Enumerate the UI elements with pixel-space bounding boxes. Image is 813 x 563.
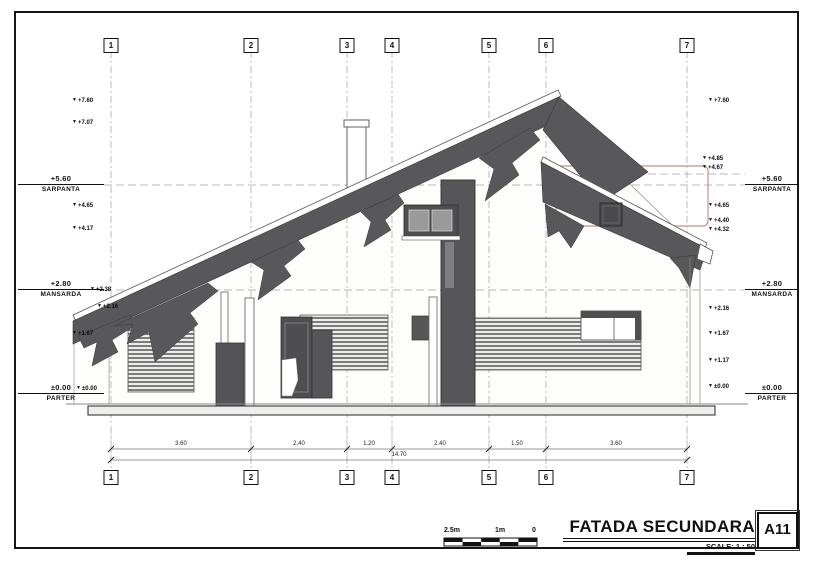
level-parter-right: ±0.00 PARTER xyxy=(745,383,799,402)
level-value: ±0.00 xyxy=(745,383,799,392)
downspout xyxy=(429,297,437,406)
triangle-down-icon: ▼ xyxy=(72,225,77,231)
level-name: MANSARDA xyxy=(745,291,799,298)
grid-bubble-top-5: 5 xyxy=(482,38,497,53)
roof-skylight xyxy=(600,203,622,226)
elev-marker-right: ▼+4.32 xyxy=(708,227,729,234)
elev-marker-left: ▼+2.38 xyxy=(90,287,111,294)
elev-marker-right: ▼+4.85 xyxy=(702,156,723,163)
elev-marker-left: ▼+2.16 xyxy=(97,304,118,311)
small-dark-window xyxy=(412,316,430,340)
scale-text: SCALE: 1 : 50 xyxy=(650,542,755,551)
elev-marker-right: ▼+4.67 xyxy=(702,165,723,172)
scalebar-label-0: 0 xyxy=(532,527,536,534)
grid-bubble-bottom-3: 3 xyxy=(340,470,355,485)
triangle-down-icon: ▼ xyxy=(702,164,707,170)
dim-segment: 1.50 xyxy=(511,441,523,447)
triangle-down-icon: ▼ xyxy=(708,305,713,311)
level-name: SARPANTA xyxy=(745,186,799,193)
dim-segment: 3.60 xyxy=(610,441,622,447)
level-sarpanta-right: +5.60 SARPANTA xyxy=(745,174,799,193)
triangle-down-icon: ▼ xyxy=(708,357,713,363)
level-rule xyxy=(18,184,104,185)
elev-marker-left: ▼+1.67 xyxy=(72,331,93,338)
grid-bubble-bottom-5: 5 xyxy=(482,470,497,485)
mansarda-double-window xyxy=(402,205,460,240)
triangle-down-icon: ▼ xyxy=(708,202,713,208)
elev-marker-left: ▼+4.65 xyxy=(72,203,93,210)
elev-marker-right: ▼±0.00 xyxy=(708,384,729,391)
drawing-sheet: 1 2 3 4 5 6 7 1 2 3 4 5 6 7 +5.60 SARPAN… xyxy=(0,0,813,563)
sheet-number: A11 xyxy=(757,512,798,549)
grid-bubble-top-3: 3 xyxy=(340,38,355,53)
drawing-title: FATADA SECUNDARA xyxy=(555,517,755,537)
level-value: +5.60 xyxy=(18,174,104,183)
triangle-down-icon: ▼ xyxy=(72,202,77,208)
scalebar-label-1m: 1m xyxy=(495,527,505,534)
triangle-down-icon: ▼ xyxy=(72,119,77,125)
grid-bubble-bottom-4: 4 xyxy=(385,470,400,485)
level-value: +2.80 xyxy=(745,279,799,288)
grid-bubble-bottom-7: 7 xyxy=(680,470,695,485)
scalebar-label-2-5m: 2.5m xyxy=(444,527,460,534)
triangle-down-icon: ▼ xyxy=(72,330,77,336)
scale-underline xyxy=(687,552,755,555)
triangle-down-icon: ▼ xyxy=(97,303,102,309)
grid-bubble-top-6: 6 xyxy=(539,38,554,53)
dimension-lines xyxy=(108,428,690,464)
dark-panel-1 xyxy=(216,343,244,406)
elev-marker-left: ▼±0.00 xyxy=(76,386,97,393)
elev-marker-right: ▼+1.17 xyxy=(708,358,729,365)
level-name: PARTER xyxy=(745,395,799,402)
level-name: SARPANTA xyxy=(18,186,104,193)
elev-marker-right: ▼+4.40 xyxy=(708,218,729,225)
level-sarpanta-left: +5.60 SARPANTA xyxy=(18,174,104,193)
triangle-down-icon: ▼ xyxy=(708,97,713,103)
triangle-down-icon: ▼ xyxy=(708,383,713,389)
elev-marker-left: ▼+7.07 xyxy=(72,120,93,127)
triangle-down-icon: ▼ xyxy=(76,385,81,391)
triangle-down-icon: ▼ xyxy=(72,97,77,103)
grid-bubble-bottom-1: 1 xyxy=(104,470,119,485)
dim-segment: 1.20 xyxy=(363,441,375,447)
elev-marker-right: ▼+4.65 xyxy=(708,203,729,210)
grid-bubble-top-4: 4 xyxy=(385,38,400,53)
triangle-down-icon: ▼ xyxy=(708,217,713,223)
dim-segment: 2.40 xyxy=(434,441,446,447)
white-post xyxy=(245,298,254,406)
central-column-highlight xyxy=(445,242,454,288)
title-underline xyxy=(563,538,755,539)
grid-bubble-bottom-6: 6 xyxy=(539,470,554,485)
elev-marker-left: ▼+7.60 xyxy=(72,98,93,105)
triangle-down-icon: ▼ xyxy=(702,155,707,161)
triangle-down-icon: ▼ xyxy=(708,330,713,336)
grid-bubble-top-1: 1 xyxy=(104,38,119,53)
grid-bubble-top-7: 7 xyxy=(680,38,695,53)
level-rule xyxy=(745,289,799,290)
level-name: PARTER xyxy=(18,395,104,402)
dark-panel-2 xyxy=(312,330,332,398)
band-window xyxy=(581,311,641,340)
level-mansarda-right: +2.80 MANSARDA xyxy=(745,279,799,298)
level-rule xyxy=(18,393,104,394)
dim-segment: 2.40 xyxy=(293,441,305,447)
scale-bar xyxy=(443,537,540,549)
elev-marker-right: ▼+2.16 xyxy=(708,306,729,313)
elev-marker-right: ▼+7.60 xyxy=(708,98,729,105)
triangle-down-icon: ▼ xyxy=(90,286,95,292)
triangle-down-icon: ▼ xyxy=(708,226,713,232)
elev-marker-left: ▼+4.17 xyxy=(72,226,93,233)
dim-total: 14.70 xyxy=(391,452,406,458)
grid-bubble-bottom-2: 2 xyxy=(244,470,259,485)
level-rule xyxy=(745,184,799,185)
dim-segment: 3.60 xyxy=(175,441,187,447)
elev-marker-right: ▼+1.67 xyxy=(708,331,729,338)
ground-slab xyxy=(88,406,715,415)
level-value: +5.60 xyxy=(745,174,799,183)
grid-bubble-top-2: 2 xyxy=(244,38,259,53)
level-rule xyxy=(745,393,799,394)
